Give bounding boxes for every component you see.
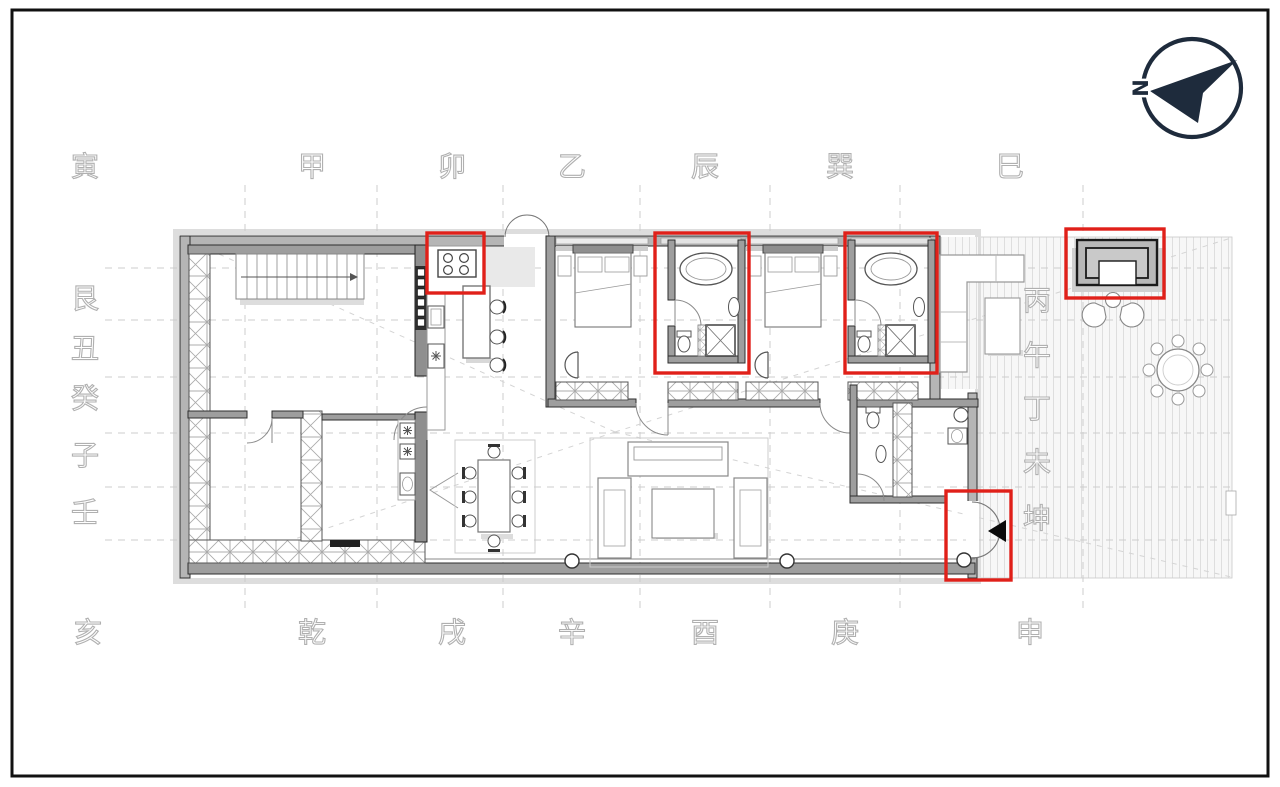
toilet-2 [857, 331, 871, 352]
sink-1 [729, 298, 740, 317]
ring-char: 丑 [71, 332, 99, 365]
ring-char: 亥 [74, 616, 102, 649]
shower-2 [886, 325, 915, 356]
staircase [236, 254, 364, 305]
outdoor-dining [1143, 335, 1213, 405]
deck-step [1226, 491, 1236, 515]
powder-toilet [867, 412, 879, 428]
ring-char: 甲 [298, 150, 326, 183]
outdoor-coffee-table [985, 298, 1020, 354]
ring-char: 艮 [71, 282, 99, 315]
island-stools [490, 300, 505, 372]
floor-plan-page: 寅 甲 卯 乙 辰 巽 巳 艮 丑 癸 子 壬 丙 午 丁 未 坤 亥 乾 戌 … [0, 0, 1280, 787]
ring-char: 卯 [438, 150, 466, 183]
stove [438, 250, 476, 277]
ring-char: 乾 [298, 616, 326, 649]
bistro-chair-right [1120, 303, 1144, 327]
north-label: N [1129, 79, 1153, 97]
ring-char: 庚 [831, 616, 859, 649]
ring-char: 癸 [71, 382, 99, 415]
kitchen-sink [428, 306, 444, 328]
kitchen-counter-shadow [485, 247, 535, 287]
water-heater [954, 408, 968, 422]
ring-char: 寅 [71, 150, 99, 183]
ring-char: 子 [71, 439, 99, 472]
ring-char: 戌 [438, 616, 466, 649]
ring-char: 巽 [826, 150, 854, 183]
coffee-table [652, 489, 714, 538]
wardrobe-strips [556, 382, 918, 400]
toilet-1 [677, 331, 691, 352]
ring-char: 辛 [558, 616, 586, 649]
ring-char: 坤 [1023, 502, 1051, 535]
ring-char: 丙 [1023, 284, 1051, 317]
outdoor-fireplace [1072, 240, 1166, 292]
ring-char: 壬 [71, 496, 99, 529]
ring-char: 申 [1016, 616, 1044, 649]
laundry-sink [948, 428, 967, 444]
bistro-table [1106, 293, 1121, 308]
kitchen-island [463, 286, 490, 358]
ring-char: 午 [1023, 339, 1051, 372]
bistro-chair-left [1082, 303, 1106, 327]
shower-1 [706, 325, 735, 356]
ring-char: 丁 [1023, 392, 1051, 425]
ring-char: 乙 [558, 150, 586, 183]
ring-char: 巳 [996, 150, 1024, 183]
powder-sink [876, 446, 886, 463]
utility-room [398, 420, 415, 500]
dining-table [478, 460, 510, 532]
sink-2 [914, 298, 925, 317]
dishwasher [428, 344, 444, 368]
ring-char: 未 [1023, 446, 1051, 479]
ring-char: 辰 [691, 150, 719, 183]
ring-char: 酉 [691, 616, 719, 649]
